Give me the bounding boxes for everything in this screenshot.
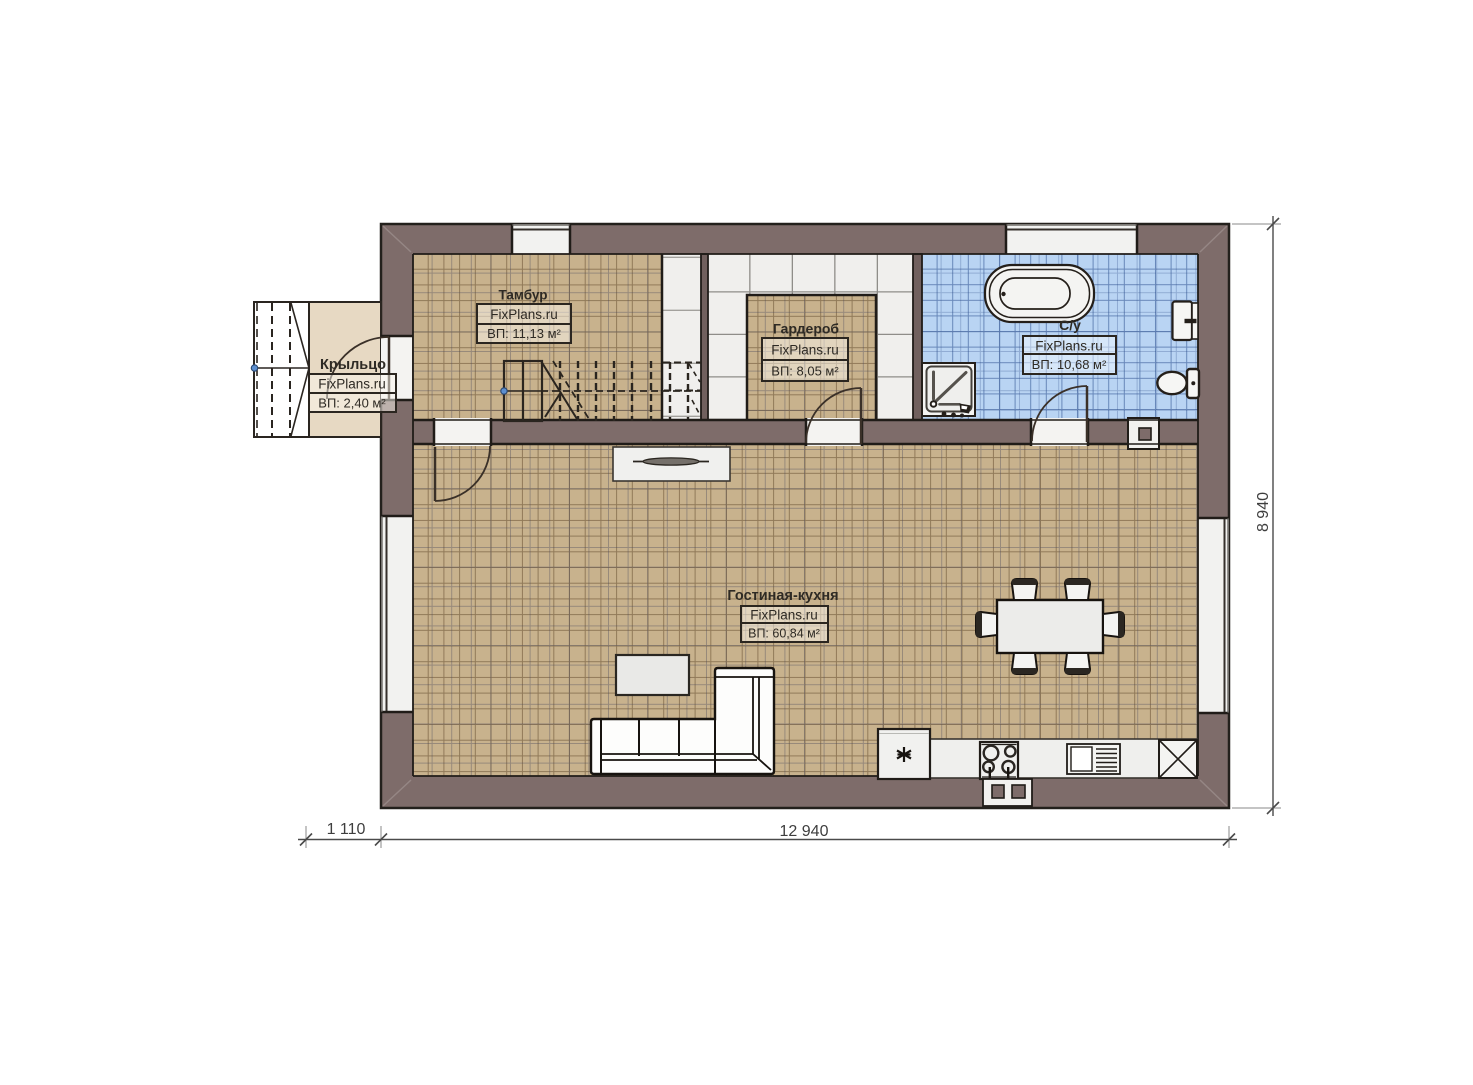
svg-text:Крыльцо: Крыльцо xyxy=(320,357,386,373)
svg-text:1 110: 1 110 xyxy=(327,821,366,838)
svg-text:ВП: 11,13 м²: ВП: 11,13 м² xyxy=(487,326,561,341)
svg-text:8 940: 8 940 xyxy=(1255,492,1272,532)
svg-text:ВП: 2,40 м²: ВП: 2,40 м² xyxy=(318,396,386,411)
svg-text:ВП: 8,05 м²: ВП: 8,05 м² xyxy=(771,364,839,379)
svg-text:С/у: С/у xyxy=(1059,317,1081,333)
svg-text:ВП: 10,68 м²: ВП: 10,68 м² xyxy=(1032,357,1107,372)
svg-text:Тамбур: Тамбур xyxy=(499,288,548,303)
svg-text:Гостиная-кухня: Гостиная-кухня xyxy=(727,588,838,604)
svg-text:ВП: 60,84 м²: ВП: 60,84 м² xyxy=(748,627,820,641)
svg-text:12 940: 12 940 xyxy=(780,823,829,840)
svg-text:FixPlans.ru: FixPlans.ru xyxy=(771,343,839,358)
svg-text:FixPlans.ru: FixPlans.ru xyxy=(490,307,558,322)
svg-text:FixPlans.ru: FixPlans.ru xyxy=(1035,339,1103,354)
svg-text:FixPlans.ru: FixPlans.ru xyxy=(318,377,386,392)
svg-text:FixPlans.ru: FixPlans.ru xyxy=(750,608,818,623)
svg-text:Гардероб: Гардероб xyxy=(773,321,840,337)
